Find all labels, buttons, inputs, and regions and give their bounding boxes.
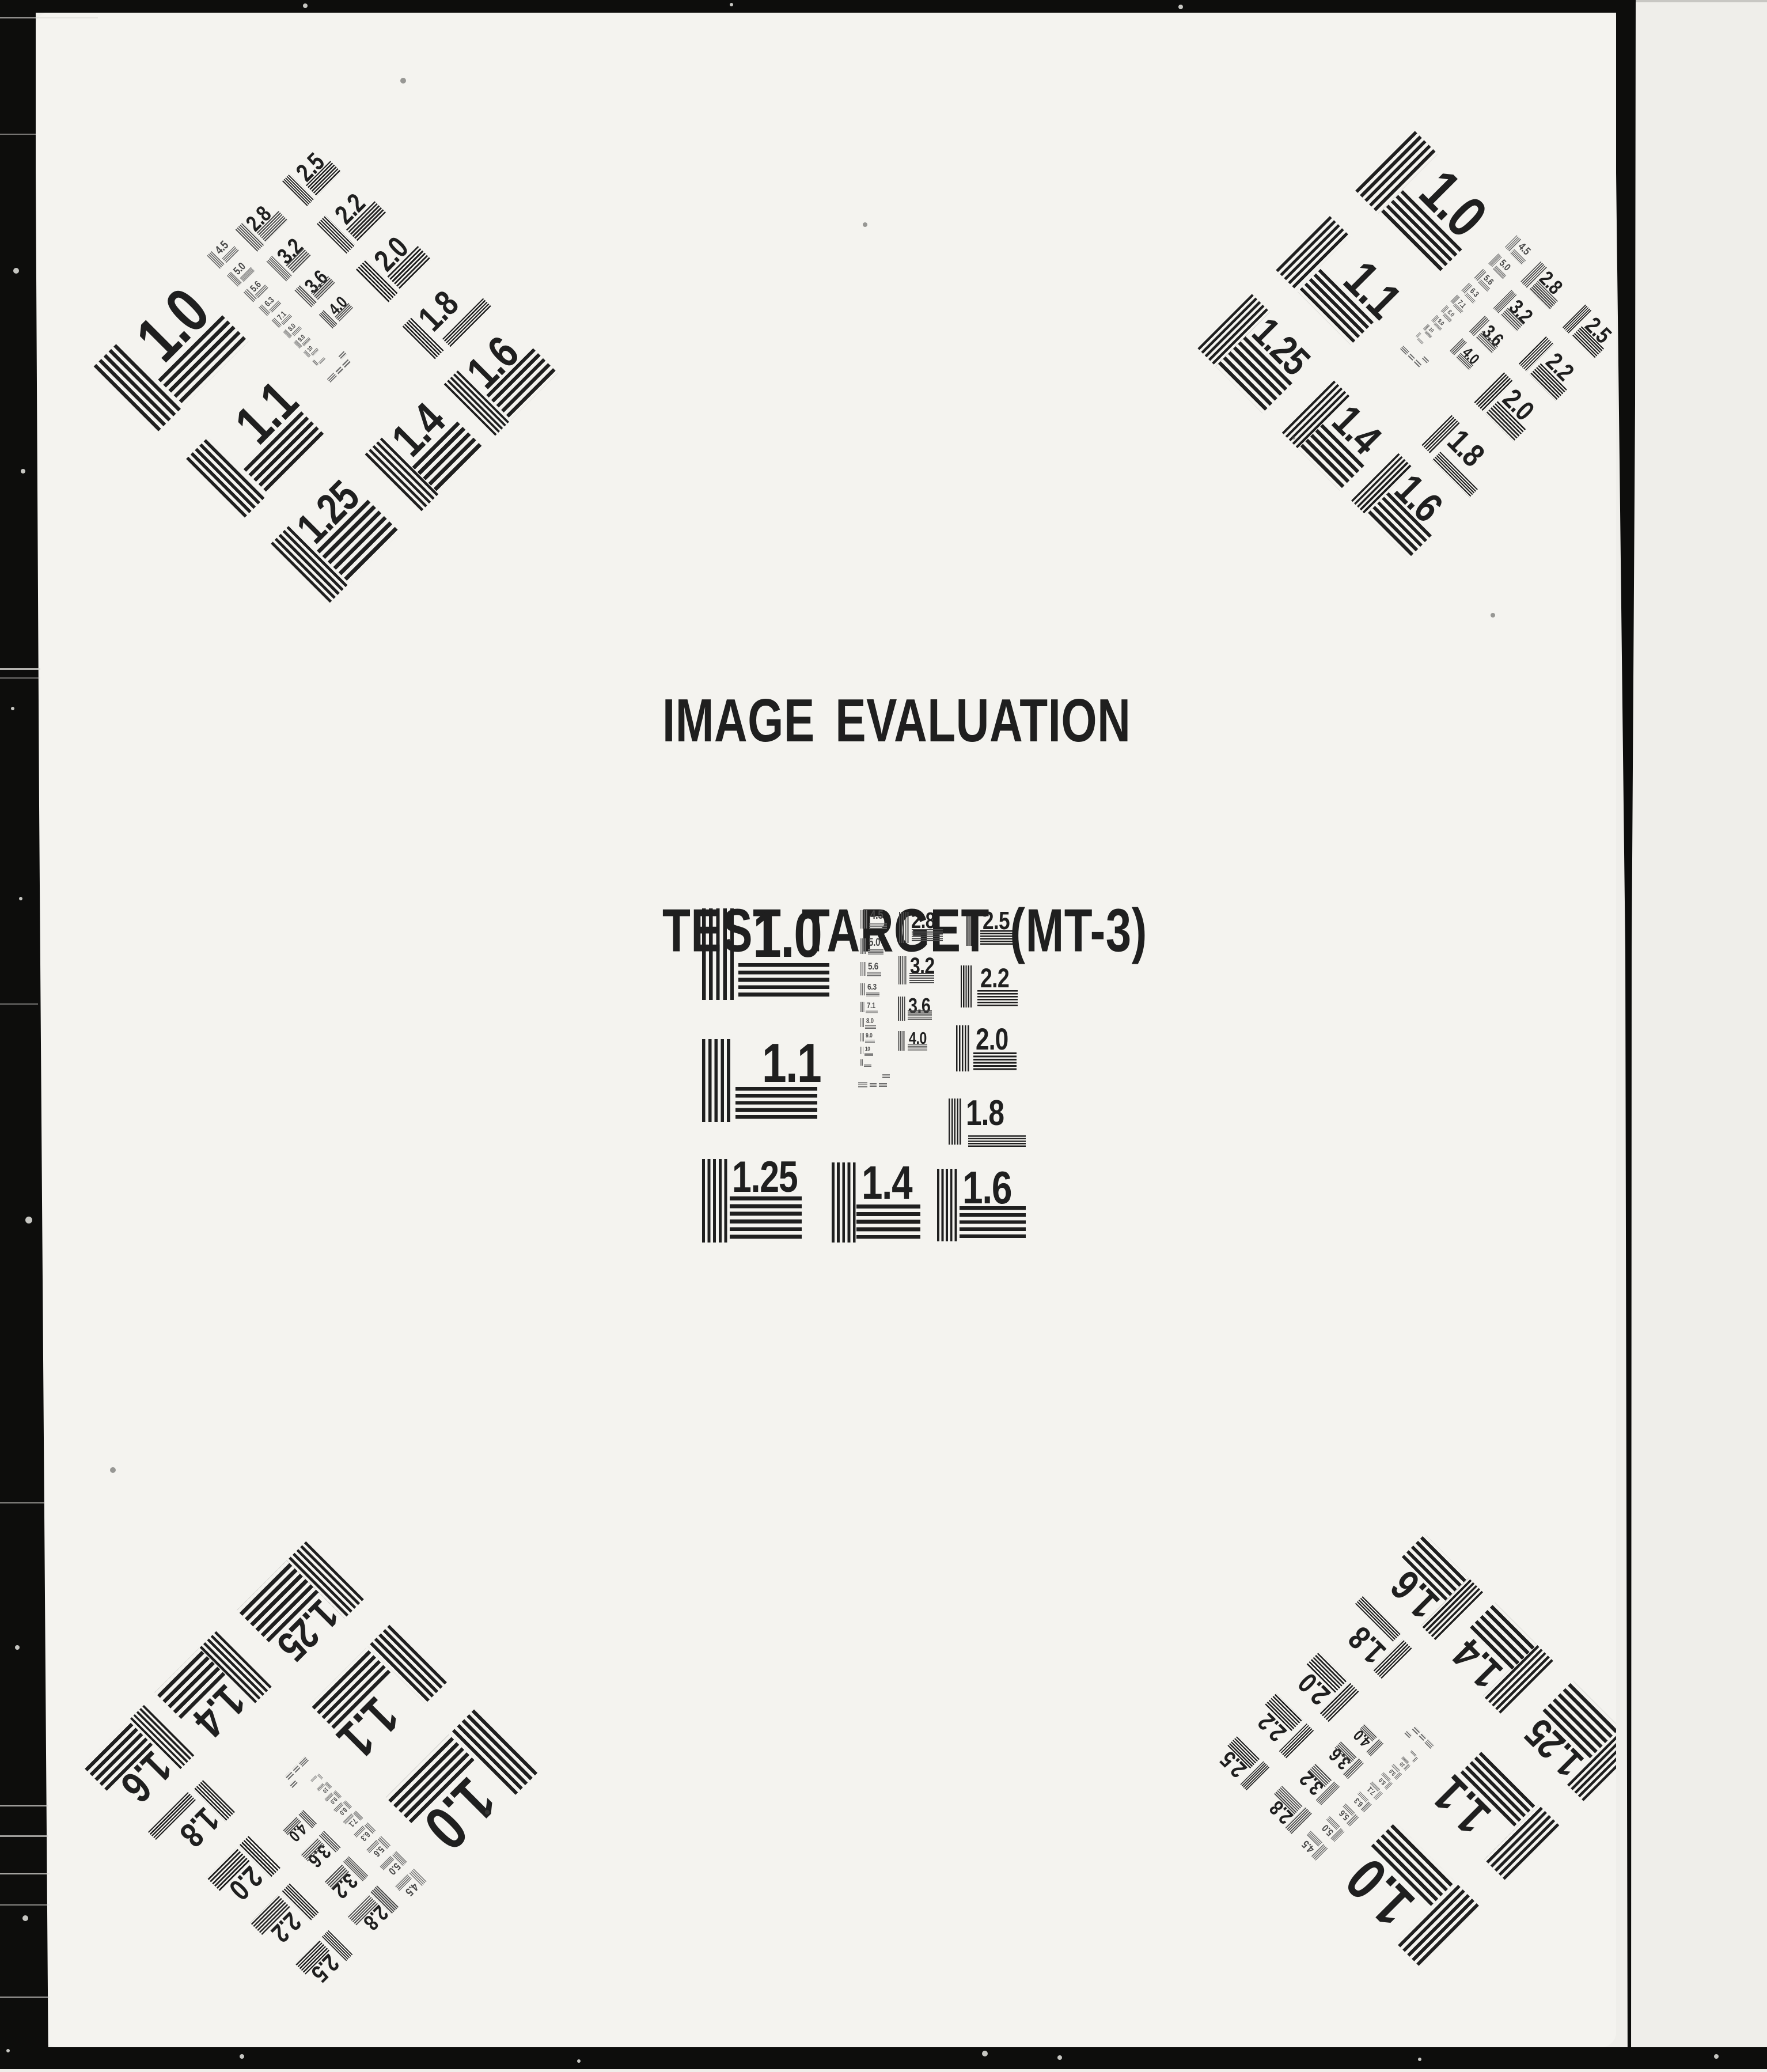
dust-speck-white	[982, 2051, 988, 2056]
dust-speck-white	[21, 469, 25, 474]
dust-speck-white	[11, 707, 14, 710]
pattern-element-1-6-vertical-bars	[937, 1169, 959, 1241]
pattern-element-1-8-horizontal-bars	[968, 1135, 1026, 1148]
pattern-element-5-0-label: 5.0	[869, 939, 880, 948]
film-edge-bottom	[0, 2047, 1767, 2069]
page: IMAGE EVALUATION TEST TARGET (MT-3) 1.01…	[36, 13, 1616, 2047]
film-scratch	[0, 134, 36, 135]
pattern-element-2-8-vertical-bars	[899, 912, 909, 943]
pattern-element-micro-horizontal-bars	[879, 1083, 887, 1088]
pattern-element-micro-horizontal-bars	[1404, 1730, 1412, 1738]
pattern-element-micro-horizontal-bars	[292, 1764, 301, 1773]
pattern-element-micro-horizontal-bars	[882, 1074, 890, 1079]
test-target-center: 1.01.11.251.41.61.82.02.22.52.83.23.64.0…	[702, 908, 1035, 1243]
pattern-element-1-0-vertical-bars	[702, 908, 737, 1000]
pattern-element-5-0-horizontal-bars	[868, 949, 884, 955]
pattern-element-6-3-label: 6.3	[867, 984, 877, 991]
pattern-element-2-0-horizontal-bars	[973, 1052, 1017, 1071]
pattern-element-2-5-vertical-bars	[966, 911, 977, 946]
dust-speck-white	[25, 1217, 32, 1223]
film-edge-top	[0, 0, 1620, 13]
pattern-element-4-5-label: 4.5	[870, 911, 883, 920]
test-target-bottom-right: 1.01.11.251.41.61.82.02.22.52.83.23.64.0…	[1200, 1527, 1616, 1966]
film-scratch	[0, 677, 40, 679]
pattern-element-8-0-horizontal-bars	[865, 1025, 876, 1029]
pattern-element-8-0-label: 8.0	[866, 1018, 874, 1024]
test-target-top-right: 1.01.11.251.41.61.82.02.22.52.83.23.64.0…	[1197, 131, 1616, 565]
pattern-element-5-6-horizontal-bars	[867, 972, 881, 977]
pattern-element-micro-horizontal-bars	[1407, 354, 1415, 362]
pattern-element-4-5-horizontal-bars	[869, 923, 887, 930]
pattern-element-1-25-vertical-bars	[702, 1159, 730, 1243]
dust-speck-white	[577, 2059, 581, 2063]
pattern-element-1-8-vertical-bars	[949, 1098, 962, 1145]
pattern-element-2-5-label: 2.5	[983, 911, 1010, 931]
pattern-element-5-6-vertical-bars	[860, 962, 866, 976]
pattern-element-7-1-label: 7.1	[867, 1002, 875, 1009]
pattern-element-10-horizontal-bars	[864, 1053, 873, 1056]
pattern-element-7-1-vertical-bars	[860, 1002, 865, 1012]
film-scratch	[0, 668, 40, 670]
pattern-element-5-6-label: 5.6	[868, 963, 878, 970]
pattern-element-4-0-horizontal-bars	[908, 1044, 927, 1051]
pattern-element-1-6-horizontal-bars	[960, 1206, 1026, 1241]
pattern-element-4-5-vertical-bars	[860, 910, 868, 929]
dust-speck-white	[13, 268, 19, 274]
pattern-element-3-6-vertical-bars	[898, 997, 906, 1021]
pattern-element-micro-horizontal-bars	[858, 1082, 867, 1088]
pattern-element-8-0-vertical-bars	[860, 1018, 864, 1027]
pattern-element-9-0-label: 9.0	[866, 1033, 873, 1039]
pattern-element-micro-horizontal-bars	[318, 357, 326, 365]
pattern-element-1-4-vertical-bars	[832, 1162, 858, 1243]
pattern-element-1-4-horizontal-bars	[856, 1204, 920, 1243]
film-edge-top-right-line	[1636, 0, 1767, 2]
pattern-element-1-1-label: 1.1	[762, 1042, 821, 1085]
pattern-element-5-0-vertical-bars	[860, 938, 867, 954]
pattern-element-micro-horizontal-bars	[310, 1775, 317, 1782]
pattern-element-2-0-label: 2.0	[976, 1028, 1008, 1051]
dust-speck-white	[303, 3, 308, 8]
pattern-element-1-1-vertical-bars	[702, 1039, 733, 1122]
pattern-element-2-2-label: 2.2	[980, 968, 1009, 989]
dust-speck-white	[240, 2054, 244, 2059]
pattern-element-micro-horizontal-bars	[289, 1779, 298, 1788]
pattern-element-2-2-vertical-bars	[961, 965, 973, 1007]
pattern-element-2-2-horizontal-bars	[977, 990, 1018, 1007]
pattern-element-9-0-vertical-bars	[860, 1033, 864, 1041]
dust-speck-white	[1057, 2055, 1062, 2060]
pattern-element-micro-horizontal-bars	[1419, 1733, 1427, 1741]
pattern-element-9-0-horizontal-bars	[865, 1040, 875, 1043]
pattern-element-micro-horizontal-bars	[870, 1083, 877, 1088]
pattern-element-10-vertical-bars	[860, 1047, 864, 1054]
pattern-element-10-label: 10	[865, 1047, 870, 1052]
dust-speck-white	[22, 1915, 28, 1921]
pattern-element-2-8-label: 2.8	[911, 912, 935, 930]
dust-speck-white	[6, 2049, 10, 2052]
pattern-element-3-2-horizontal-bars	[909, 973, 934, 984]
pattern-element-micro-horizontal-bars	[336, 366, 344, 375]
pattern-element-micro-horizontal-bars	[298, 1756, 309, 1767]
dust-speck-white	[19, 897, 22, 900]
pattern-element-1-25-horizontal-bars	[730, 1196, 802, 1243]
dust-speck-white	[1418, 2058, 1421, 2061]
pattern-element-micro-vertical-bars	[1412, 1756, 1419, 1763]
test-target-top-left: 1.01.11.251.41.61.82.02.22.52.83.23.64.0…	[94, 131, 566, 603]
pattern-element-1-8-label: 1.8	[966, 1100, 1004, 1127]
pattern-element-micro-horizontal-bars	[1400, 346, 1409, 355]
dust-speck-white	[1178, 5, 1183, 9]
pattern-element-6-3-horizontal-bars	[866, 993, 879, 997]
pattern-element-micro-horizontal-bars	[342, 359, 351, 369]
pattern-element-1-0-horizontal-bars	[738, 963, 829, 1000]
pattern-element-micro-horizontal-bars	[1413, 359, 1421, 368]
pattern-element-4-0-vertical-bars	[898, 1031, 905, 1051]
pattern-element-2-0-vertical-bars	[956, 1025, 970, 1071]
pattern-element-micro-vertical-bars	[317, 1774, 323, 1780]
pattern-element-micro-horizontal-bars	[1424, 1739, 1434, 1749]
pattern-element-micro-horizontal-bars	[864, 1065, 871, 1067]
pattern-element-micro-horizontal-bars	[1421, 356, 1429, 364]
pattern-element-micro-vertical-bars	[860, 1059, 863, 1066]
pattern-element-1-1-horizontal-bars	[735, 1087, 817, 1122]
pattern-element-6-3-vertical-bars	[860, 983, 866, 995]
scanned-microfilm-frame: { "palette": { "page": "#f4f3ef", "film_…	[0, 0, 1767, 2069]
pattern-element-1-0-label: 1.0	[753, 910, 821, 960]
dust-speck-white	[1714, 2054, 1719, 2059]
pattern-element-7-1-horizontal-bars	[866, 1010, 878, 1014]
pattern-element-micro-horizontal-bars	[339, 351, 347, 359]
pattern-element-2-8-horizontal-bars	[912, 929, 943, 942]
film-scratch	[0, 1003, 38, 1005]
pattern-element-1-6-label: 1.6	[962, 1170, 1011, 1206]
pattern-element-micro-horizontal-bars	[1412, 1726, 1421, 1734]
pattern-element-micro-horizontal-bars	[1410, 1750, 1417, 1757]
pattern-element-2-5-horizontal-bars	[980, 930, 1015, 946]
pattern-element-micro-horizontal-bars	[1417, 338, 1424, 344]
film-edge-right-bar	[1616, 0, 1636, 2069]
title-line-1: IMAGE EVALUATION	[662, 686, 1147, 756]
test-target-bottom-left: 1.01.11.251.41.61.82.02.22.52.83.23.64.0…	[75, 1541, 537, 2003]
dust-speck-white	[730, 3, 733, 6]
pattern-element-3-2-vertical-bars	[898, 956, 907, 984]
pattern-element-3-6-horizontal-bars	[908, 1010, 932, 1021]
pattern-element-1-4-label: 1.4	[862, 1165, 912, 1202]
pattern-element-1-25-label: 1.25	[732, 1160, 797, 1194]
dust-speck-white	[15, 1645, 20, 1650]
pattern-element-micro-horizontal-bars	[285, 1771, 294, 1780]
pattern-element-micro-horizontal-bars	[327, 373, 338, 383]
